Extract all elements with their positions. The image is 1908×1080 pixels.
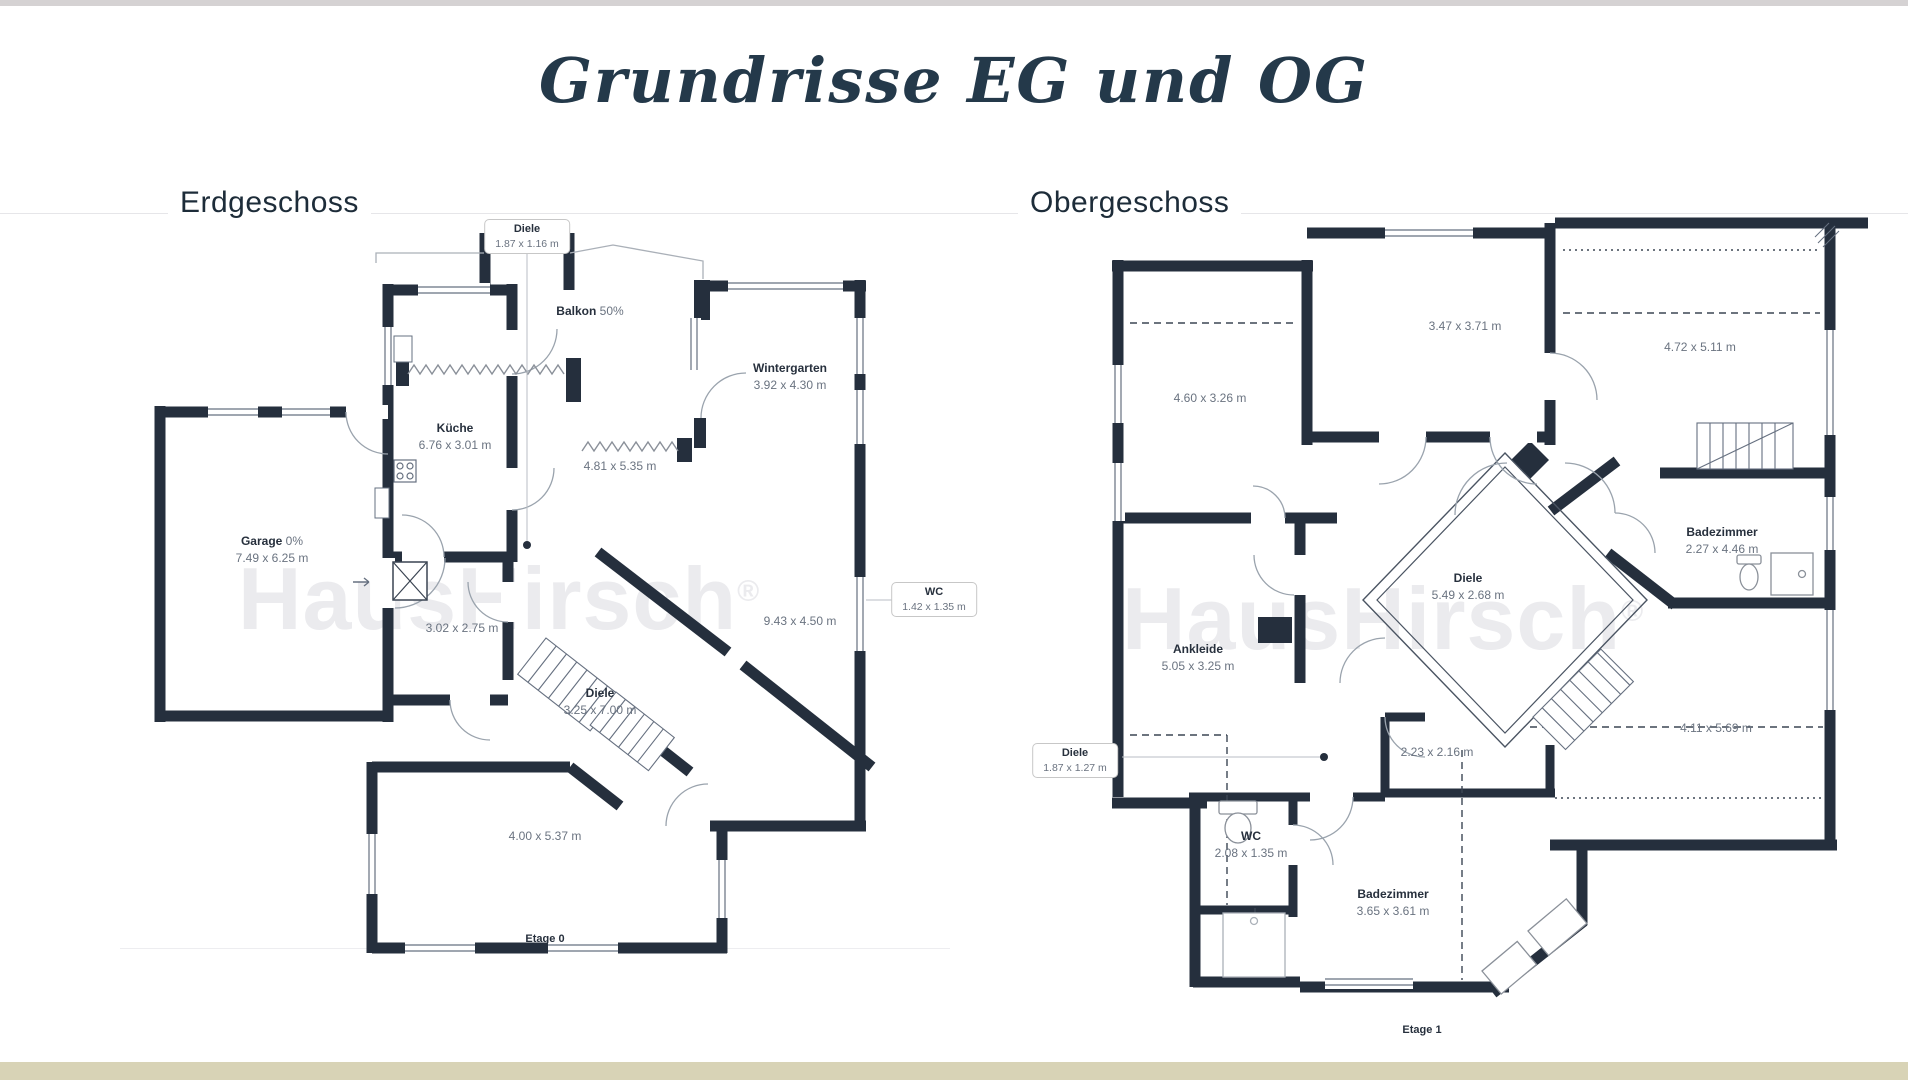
callout-diele-eg: Diele 1.87 x 1.16 m [484,219,570,254]
og-staircase-topright [1697,423,1793,469]
og-door-arcs [1253,353,1655,865]
og-shower-icon-bad [1771,553,1813,595]
room-label-wc-og: WC 2.08 x 1.35 m [1215,828,1288,862]
room-label-472: 4.72 x 5.11 m [1664,339,1736,356]
og-toilet-icon-bad [1737,555,1761,590]
room-label-wintergarten: Wintergarten 3.92 x 4.30 m [753,360,827,394]
room-label-wohnbereich: 4.81 x 5.35 m [584,458,657,475]
erdgeschoss-floorplan [150,222,960,962]
room-label-943: 9.43 x 4.50 m [764,613,837,630]
room-label-223: 2.23 x 2.16 m [1401,744,1474,761]
og-stair-core [1363,453,1647,750]
eg-entrance-arrow [353,578,369,586]
callout-diele-og: Diele 1.87 x 1.27 m [1032,743,1118,778]
heading-obergeschoss: Obergeschoss [1018,186,1241,220]
og-callout-leader [1122,753,1328,761]
og-shower-icon-bottom [1223,913,1285,977]
callout-wc-eg: WC 1.42 x 1.35 m [891,582,977,617]
eg-shaft [393,562,427,600]
room-label-347: 3.47 x 3.71 m [1429,318,1502,335]
room-label-diele-eg: Diele 3.25 x 7.00 m [564,685,637,719]
bottom-accent-bar [0,1062,1908,1080]
room-label-302: 3.02 x 2.75 m [426,620,499,637]
room-label-diele-og: Diele 5.49 x 2.68 m [1432,570,1505,604]
page-title: Grundrisse EG und OG [0,44,1908,117]
top-accent-bar [0,0,1908,6]
floor-label-etage0: Etage 0 [525,933,564,945]
room-label-ankleide: Ankleide 5.05 x 3.25 m [1162,641,1235,675]
og-sink-icons [1482,899,1587,994]
eg-windows [208,231,867,955]
room-label-balkon: Balkon 50% [556,303,623,320]
room-label-460: 4.60 x 3.26 m [1174,390,1247,407]
floor-label-etage1: Etage 1 [1402,1024,1441,1036]
heading-erdgeschoss: Erdgeschoss [168,186,371,220]
room-label-411: 4.11 x 5.69 m [1680,720,1752,737]
eg-stove-icon [394,460,416,482]
room-label-400: 4.00 x 5.37 m [509,828,582,845]
room-label-kueche: Küche 6.76 x 3.01 m [419,420,492,454]
room-label-badezimmer-unten: Badezimmer 3.65 x 3.61 m [1357,886,1430,920]
floorplan-sheet: { "title": "Grundrisse EG und OG", "wate… [0,0,1908,1080]
room-label-garage: Garage 0% 7.49 x 6.25 m [236,533,309,567]
room-label-badezimmer-oben: Badezimmer 2.27 x 4.46 m [1686,524,1759,558]
